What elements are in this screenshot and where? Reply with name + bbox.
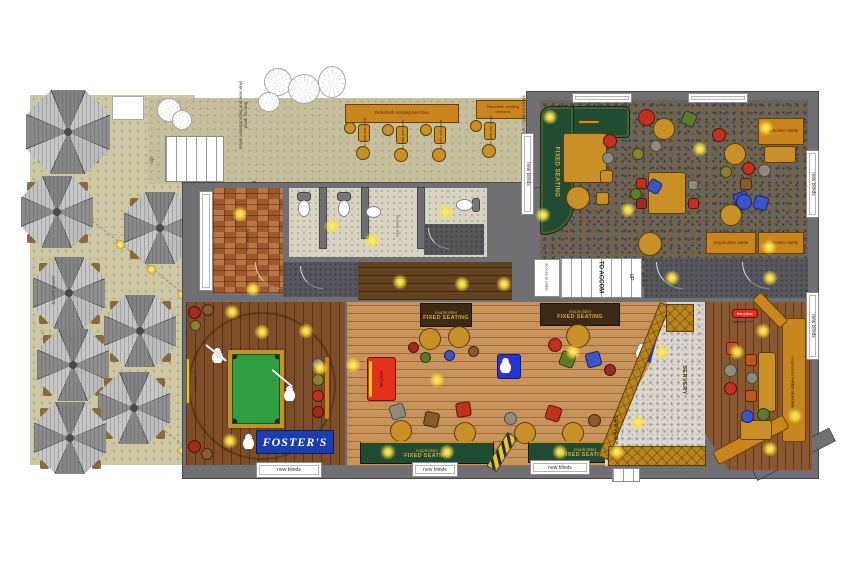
cushion-chair (688, 198, 699, 209)
banquette-label: FIXED SEATING (423, 315, 469, 321)
plant (318, 66, 346, 98)
parasol-hub (69, 361, 77, 369)
seat-trim (578, 120, 600, 124)
ceiling-light (729, 344, 745, 360)
blinds-label: new blinds (809, 314, 815, 338)
blinds-label: new blinds (277, 467, 301, 473)
cellar-note: access to cellar (544, 263, 549, 291)
stool (758, 164, 771, 177)
stool (188, 440, 201, 453)
tv-wall-strip (186, 358, 190, 404)
ceiling-light (254, 324, 270, 340)
parasol-hub (65, 289, 73, 297)
festoon-light (147, 265, 156, 274)
tub-chair (736, 194, 752, 210)
terrace-table: New table and stools (396, 126, 408, 144)
lounge-window-top (572, 93, 632, 103)
bar-banquette: reupholsterFIXED SEATING (540, 303, 620, 326)
terrace-table: New table and stools (358, 124, 370, 142)
stool (742, 162, 755, 175)
ceiling-light (654, 344, 670, 360)
plant (288, 74, 320, 104)
tub-chair (741, 410, 754, 423)
ceiling-light (535, 207, 551, 223)
bench-label: Refurbish existing benches (479, 105, 527, 114)
parasol-hub (130, 404, 138, 412)
parasol-hub (66, 434, 74, 442)
toilet (456, 199, 473, 211)
cistern (472, 198, 480, 212)
bottom-window: new blinds (412, 462, 458, 477)
ceiling-light (345, 357, 361, 373)
bench-label: Refurbish existing benches (357, 111, 447, 116)
round-table (566, 186, 590, 210)
to-accom-label: TO ACCOM (597, 261, 604, 293)
tv-note: relocated TV (194, 370, 199, 393)
stool (356, 146, 370, 160)
parasol-table (98, 372, 170, 444)
stool (604, 364, 616, 376)
stool (588, 414, 601, 427)
snug-table (740, 420, 772, 440)
ceiling-light (324, 218, 340, 234)
steps-up-label: up (149, 157, 155, 163)
flooring-note: new flooring (246, 229, 251, 251)
stool (408, 342, 419, 353)
lounge-window-top (688, 93, 748, 103)
ceiling-light (380, 444, 396, 460)
ceiling-light (222, 433, 238, 449)
ceiling-light (762, 270, 778, 286)
ceiling-light (496, 276, 512, 292)
stool (382, 124, 394, 136)
snug-seating-main: FIXED SEATING (790, 377, 795, 407)
stool (720, 166, 732, 178)
remove-tv-note: remove TV (733, 320, 753, 325)
terrace-note: retain waterproofing and new vinyl plank… (238, 79, 248, 151)
parasol-table (104, 295, 176, 367)
ceiling-light (620, 202, 636, 218)
toilet (298, 200, 310, 217)
plant (258, 92, 280, 112)
ceiling-light (664, 270, 680, 286)
ceiling-light (565, 344, 581, 360)
basin (366, 206, 381, 218)
ceiling-light (438, 204, 454, 220)
stool (201, 448, 213, 460)
ceiling-light (392, 274, 408, 290)
stool (632, 148, 644, 160)
round-table (638, 232, 662, 256)
chair (600, 170, 613, 183)
ceiling-light (761, 239, 777, 255)
stool (468, 346, 479, 357)
ceiling-light (364, 232, 380, 248)
ceiling-light (755, 323, 771, 339)
ceiling-light (758, 120, 774, 136)
fireplace-label: fire place (380, 371, 385, 387)
blinds-label: new blinds (423, 467, 447, 473)
tub-chair (455, 401, 472, 418)
settle-label: reupholster settle (709, 241, 752, 246)
stool (394, 148, 408, 162)
stool (602, 152, 614, 164)
ceiling-light (692, 141, 708, 157)
ceiling-light (454, 276, 470, 292)
tub-chair (548, 338, 562, 352)
person-figure (243, 434, 254, 449)
chair (596, 192, 609, 205)
cushion-chair (688, 180, 698, 190)
stool (202, 304, 214, 316)
parasol-table (26, 90, 110, 174)
stool (188, 306, 201, 319)
ceiling-light (245, 281, 261, 297)
servery-label: SERVERY (681, 365, 687, 394)
stool (470, 120, 482, 132)
garden-gate (112, 96, 144, 120)
lounge-window-left: new blinds (521, 133, 534, 215)
snug-fireplace: fire place (732, 309, 758, 318)
stool (630, 188, 642, 200)
bar-banquette: reupholsterFIXED SEATING (420, 303, 472, 327)
stool (650, 140, 662, 152)
snug-table (758, 352, 776, 412)
parasol-hub (136, 327, 144, 335)
settle-table (764, 146, 796, 163)
stool (344, 122, 356, 134)
blinds-label: new blinds (809, 172, 815, 196)
terrace-table: New table and stools (434, 126, 446, 144)
ceiling-light (630, 414, 646, 430)
stool (724, 364, 737, 377)
parasol-hub (53, 208, 61, 216)
ceiling-light (439, 444, 455, 460)
floor-plan: bound gravel up retain waterproofing and… (0, 0, 848, 565)
round-table (390, 420, 412, 442)
stool (432, 148, 446, 162)
round-table (448, 326, 470, 348)
person-figure (500, 358, 511, 373)
lounge-window-right: new blinds (806, 150, 819, 218)
tub-chair (757, 408, 770, 421)
parasol-table (21, 176, 93, 248)
ceiling-light (609, 444, 625, 460)
garden-note: bound gravel (52, 276, 58, 305)
chair (740, 178, 752, 190)
round-table (653, 118, 675, 140)
armchair (712, 128, 726, 142)
parasol-table (33, 257, 105, 329)
pool-table (228, 350, 284, 428)
parasol-hub (64, 128, 72, 136)
stool (724, 382, 737, 395)
stool (420, 352, 431, 363)
armchair (603, 134, 617, 148)
stool (420, 124, 432, 136)
plant (172, 110, 192, 130)
banquette-label: FIXED SEATING (557, 314, 603, 320)
stool (190, 320, 201, 331)
servery-label: SERVERY (612, 415, 618, 444)
entry-steps (612, 468, 640, 482)
round-table (419, 328, 441, 350)
round-table (724, 143, 746, 165)
snug-seating-label: reupholster FIXED SEATING (790, 356, 795, 408)
stool (504, 412, 517, 425)
servery-station (666, 304, 694, 332)
corridor (358, 262, 512, 300)
blinds-label: new blinds (524, 162, 530, 186)
person-figure (284, 386, 295, 401)
blinds-label: new blinds (548, 465, 572, 471)
ceiling-light (552, 444, 568, 460)
stool (746, 372, 758, 384)
parasol-table (34, 402, 106, 474)
parasol-hub (156, 224, 164, 232)
settle: reupholster settle (706, 232, 756, 254)
entrance-window (199, 191, 213, 291)
terrace-table: New table and stools (484, 122, 496, 140)
stool (312, 406, 324, 418)
terrace-steps (165, 136, 224, 182)
fosters-banner: FOSTER'S (256, 430, 334, 454)
ceiling-light (232, 206, 248, 222)
fosters-label: FOSTER'S (263, 435, 328, 450)
ceiling-light (542, 109, 558, 125)
chair (745, 390, 757, 402)
armchair (638, 109, 655, 126)
snug-seating-sub: reupholster (790, 356, 795, 376)
wc-partition (320, 188, 326, 248)
up-label: UP (627, 274, 633, 281)
ceiling-light (429, 372, 445, 388)
ceiling-light (298, 323, 314, 339)
chair (745, 354, 757, 366)
fireplace-trim (369, 361, 372, 397)
toilet (338, 200, 350, 217)
lounge-fixed-seating-label: FIXED SEATING (553, 147, 560, 198)
ceiling-light (224, 304, 240, 320)
bottom-window: new blinds (256, 462, 322, 478)
bottom-window: new blinds (530, 460, 590, 475)
snug-window-right: new blinds (806, 292, 819, 360)
stool (312, 390, 324, 402)
ceiling-light (762, 441, 778, 457)
stool (444, 350, 455, 361)
fireplace-label: fire place (737, 311, 753, 316)
ceiling-light (787, 408, 803, 424)
flooring-note: new flooring (396, 215, 401, 237)
stool (482, 144, 496, 158)
ceiling-light (312, 360, 328, 376)
tub-chair (423, 411, 441, 429)
